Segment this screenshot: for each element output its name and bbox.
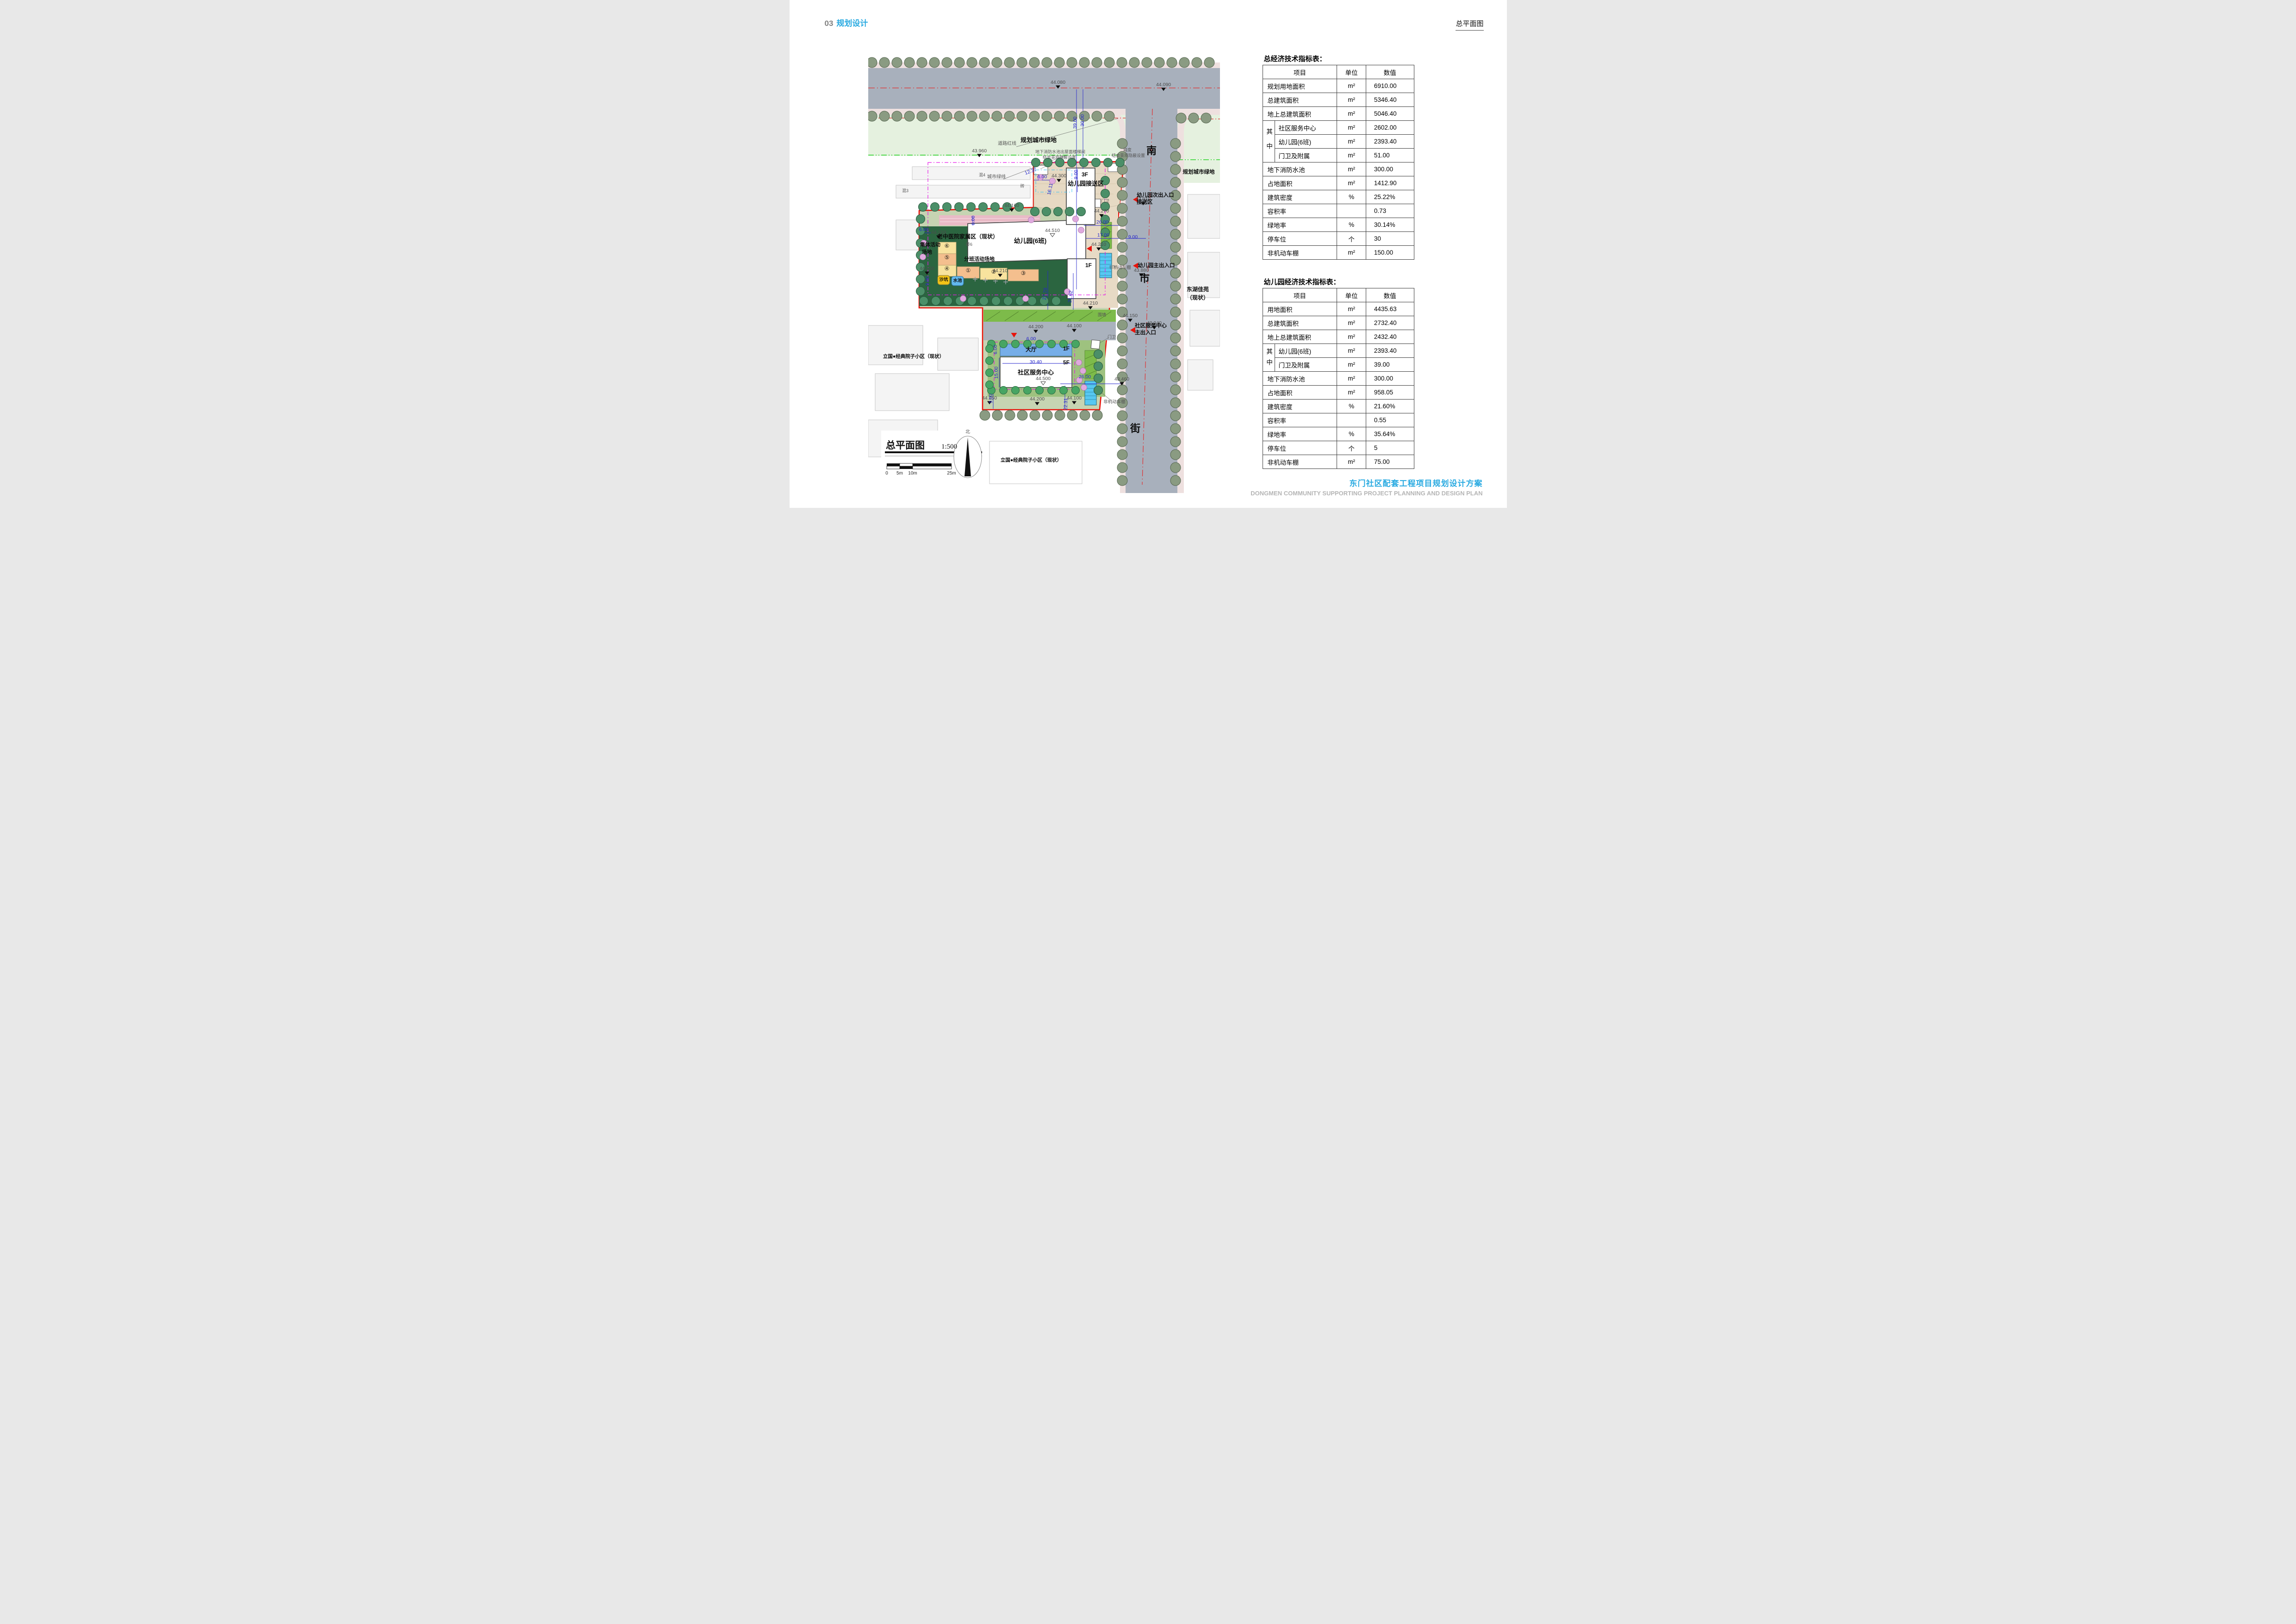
dimension-label: 6.00: [919, 227, 928, 232]
tree: [1129, 57, 1139, 68]
tree: [1117, 462, 1127, 473]
table-cell: 300.00: [1366, 372, 1414, 386]
table-cell: 单位: [1337, 65, 1366, 79]
level-label: 44.510: [1045, 228, 1059, 233]
play-area-number: ④: [944, 265, 949, 272]
tree: [1170, 268, 1181, 278]
dimension-label: 26.00: [1096, 219, 1108, 225]
tree: [954, 111, 964, 121]
road-north: [868, 68, 1220, 109]
tree: [985, 357, 993, 365]
table-cell: 39.00: [1366, 358, 1414, 372]
tree: [1188, 113, 1199, 123]
page-footer: 东门社区配套工程项目规划设计方案 DONGMEN COMMUNITY SUPPO…: [1251, 477, 1482, 497]
flowering-tree: [1022, 296, 1028, 302]
table-cell: 个: [1337, 232, 1366, 246]
plan-title: 总平面图: [886, 440, 925, 451]
tree: [1091, 158, 1100, 167]
tree: [1117, 138, 1127, 149]
annotation-label: 结合景观隐蔽设置: [1042, 155, 1076, 160]
flowering-tree: [1081, 385, 1087, 391]
tree: [966, 203, 975, 212]
tree: [892, 57, 902, 68]
area-label: 3F: [1081, 171, 1088, 178]
tree: [1170, 320, 1181, 330]
tree: [1170, 242, 1181, 252]
level-label: 44.200: [1029, 396, 1044, 402]
tree: [1053, 207, 1062, 216]
level-label: 44.100: [1066, 395, 1081, 401]
flowering-tree: [1028, 217, 1034, 223]
tree: [1031, 158, 1040, 167]
dimension-label: 6.00: [1026, 336, 1036, 342]
tree: [1117, 346, 1127, 356]
tree: [1170, 216, 1181, 226]
play-area-number: ⑤: [944, 254, 949, 261]
tree: [1092, 410, 1102, 420]
tree: [1117, 333, 1127, 343]
access-strip: [983, 322, 1116, 340]
table-cell: 0.73: [1366, 204, 1414, 218]
tree: [1170, 294, 1181, 304]
chapter-number: 03: [825, 19, 834, 28]
table-cell: 非机动车棚: [1263, 246, 1337, 260]
table-cell: %: [1337, 190, 1366, 204]
tree: [1011, 340, 1019, 348]
table-cell-group: 其中: [1263, 344, 1275, 372]
tree: [1117, 294, 1127, 304]
annotation-label: 门卫: [1101, 198, 1109, 203]
area-label: 幼儿园(6班): [1014, 237, 1046, 244]
scale-label: 0: [885, 471, 888, 476]
annotation-label: 箱变: [1123, 147, 1131, 152]
tree: [1023, 387, 1031, 394]
table-cell: 地下消防水池: [1263, 372, 1337, 386]
indicator-table: 项目单位数值用地面积m²4435.63总建筑面积m²2732.40地上总建筑面积…: [1263, 288, 1414, 469]
tree: [904, 57, 915, 68]
flowering-tree: [1076, 360, 1082, 366]
tree: [1030, 410, 1040, 420]
overall-indicator-table: 项目单位数值规划用地面积m²6910.00总建筑面积m²5346.40地上总建筑…: [1263, 65, 1414, 260]
annotation-label: 城市绿线: [987, 174, 1006, 180]
table-cell: 绿地率: [1263, 218, 1337, 232]
tree: [1071, 340, 1079, 348]
table-cell: 用地面积: [1263, 302, 1337, 316]
flowering-tree: [1072, 216, 1078, 222]
flowering-tree: [1080, 368, 1086, 374]
area-label: 立国●经典院子小区（现状）: [883, 353, 944, 359]
tree: [1103, 158, 1112, 167]
table-cell: 21.60%: [1366, 400, 1414, 413]
table-cell: 门卫及附属: [1275, 358, 1337, 372]
table-cell: 2393.40: [1366, 344, 1414, 358]
play-area-number: ⑥: [944, 243, 949, 249]
dimension-label: 6.00: [1037, 174, 1047, 180]
table-cell: 2732.40: [1366, 316, 1414, 330]
tree: [919, 297, 928, 306]
tree: [879, 57, 890, 68]
tree: [999, 340, 1007, 348]
road-south-market-street: [1126, 109, 1177, 493]
table-cell: 958.05: [1366, 386, 1414, 400]
tree: [1117, 57, 1127, 68]
tree: [917, 57, 927, 68]
tree: [1192, 57, 1202, 68]
tree: [1117, 216, 1127, 226]
table-cell: 单位: [1337, 288, 1366, 302]
tree: [1080, 410, 1090, 420]
tree: [942, 111, 952, 121]
tree: [904, 111, 915, 121]
tree: [868, 57, 877, 68]
table-cell: 停车位: [1263, 232, 1337, 246]
tree: [929, 111, 940, 121]
tree: [1035, 340, 1043, 348]
table-cell: 5346.40: [1366, 93, 1414, 107]
level-label: 44.270: [1094, 208, 1108, 214]
tree: [1017, 111, 1027, 121]
tree: [1117, 320, 1127, 330]
level-label: 44.090: [1156, 82, 1170, 87]
tree: [916, 275, 925, 284]
project-title-en: DONGMEN COMMUNITY SUPPORTING PROJECT PLA…: [1251, 490, 1482, 497]
table-cell: m²: [1337, 344, 1366, 358]
sheet-title: 总平面图: [1456, 19, 1483, 31]
area-label: 沙坑: [939, 277, 948, 282]
area-label: 5F: [1063, 359, 1069, 366]
level-label: 43.460: [1114, 376, 1129, 382]
tree: [1170, 424, 1181, 434]
table-cell: 2432.40: [1366, 330, 1414, 344]
tree: [1170, 372, 1181, 382]
tree: [1170, 138, 1181, 149]
tree: [1042, 57, 1052, 68]
dimension-label: 39.00: [1072, 117, 1078, 129]
table-cell: 绿地率: [1263, 427, 1337, 441]
tree: [992, 410, 1002, 420]
table-cell: m²: [1337, 455, 1366, 469]
tree: [1052, 297, 1060, 306]
annotation-label: 混4: [978, 173, 985, 177]
area-label: 1F: [1063, 345, 1069, 352]
tree: [879, 111, 890, 121]
table-cell: 51.00: [1366, 149, 1414, 162]
tree: [1047, 340, 1055, 348]
tree: [1115, 158, 1124, 167]
table-cell: 项目: [1263, 65, 1337, 79]
table-cell-group: 其中: [1263, 121, 1275, 162]
table-cell: m²: [1337, 176, 1366, 190]
tree: [1117, 190, 1127, 200]
tree: [1094, 386, 1102, 395]
tree: [1170, 229, 1181, 239]
tree: [1142, 57, 1152, 68]
table-cell: 6910.00: [1366, 79, 1414, 93]
tree: [954, 57, 964, 68]
tree: [1170, 346, 1181, 356]
tree: [979, 57, 989, 68]
play-area-number: ①: [965, 267, 971, 274]
table-cell: 建筑密度: [1263, 400, 1337, 413]
table-cell: m²: [1337, 93, 1366, 107]
annotation-label: 非机动车棚: [1109, 265, 1131, 270]
area-label: 1F: [1085, 262, 1091, 269]
tree: [1101, 189, 1109, 198]
table-cell: m²: [1337, 149, 1366, 162]
tree: [1027, 297, 1036, 306]
dimension-label: 17.00: [1097, 232, 1109, 238]
annotation-label: 砖: [1020, 183, 1024, 188]
table-cell: 5046.40: [1366, 107, 1414, 121]
annotation-label: 道路红线: [998, 140, 1016, 146]
dimension-label: 6.00: [971, 216, 976, 225]
table-cell: 建筑密度: [1263, 190, 1337, 204]
tree: [967, 57, 977, 68]
tree: [1092, 111, 1102, 121]
scale-label: 25m: [947, 471, 956, 476]
level-label: 44.200: [1028, 324, 1043, 330]
table-cell: 300.00: [1366, 162, 1414, 176]
dimension-label: 30.00: [1080, 114, 1085, 126]
table-cell: %: [1337, 427, 1366, 441]
tree: [1054, 57, 1064, 68]
annotation-label: 门卫: [1107, 334, 1115, 339]
table-cell: %: [1337, 218, 1366, 232]
area-label: 南: [1146, 145, 1156, 156]
table-cell: m²: [1337, 135, 1366, 149]
tree: [992, 57, 1002, 68]
tree: [1055, 410, 1065, 420]
table-cell: 35.64%: [1366, 427, 1414, 441]
tree: [1005, 410, 1015, 420]
tree: [990, 203, 999, 212]
tree: [1094, 350, 1102, 359]
table-title-overall: 总经济技术指标表：: [1264, 54, 1326, 63]
area-label: 老中医院家属区（现状）: [937, 233, 998, 240]
level-label: 44.210: [1083, 300, 1097, 306]
table-cell: 停车位: [1263, 441, 1337, 455]
page-header: 03规划设计: [825, 17, 868, 28]
table-cell: 地下消防水池: [1263, 162, 1337, 176]
table-cell: 5: [1366, 441, 1414, 455]
table-cell: m²: [1337, 316, 1366, 330]
area-label: 水池: [953, 278, 962, 283]
annotation-label: 砖6: [965, 242, 972, 247]
table-cell: 地上总建筑面积: [1263, 107, 1337, 121]
tree: [1030, 207, 1039, 216]
table-cell: m²: [1337, 372, 1366, 386]
tree: [1059, 387, 1067, 394]
tree: [1104, 57, 1114, 68]
tree: [1117, 385, 1127, 395]
table-cell: m²: [1337, 162, 1366, 176]
entrance-label: 主出入口: [1135, 329, 1156, 336]
tree: [1035, 387, 1043, 394]
area-label: 集体活动: [920, 241, 940, 248]
tree: [985, 381, 993, 389]
tree: [1170, 411, 1181, 421]
annotation-label: 围墙: [1097, 312, 1106, 317]
tree: [1179, 57, 1189, 68]
tree: [1170, 437, 1181, 447]
tree: [1076, 207, 1085, 216]
tree: [985, 369, 993, 377]
tree: [1167, 57, 1177, 68]
document-page: 03规划设计 总平面图: [790, 0, 1507, 508]
dimension-label: 15.00: [994, 367, 999, 379]
tree: [942, 57, 952, 68]
tree: [1170, 398, 1181, 408]
entrance-label: 幼儿园主出入口: [1138, 262, 1175, 269]
tree: [1170, 333, 1181, 343]
area-label: 东湖佳苑: [1186, 286, 1208, 293]
dimension-label: 6.00: [993, 345, 998, 355]
table-cell: m²: [1337, 330, 1366, 344]
table-cell: m²: [1337, 107, 1366, 121]
area-label: 规划城市绿地: [1182, 169, 1214, 175]
scale-bar: [887, 463, 952, 469]
table-cell: 4435.63: [1366, 302, 1414, 316]
table-cell: m²: [1337, 246, 1366, 260]
annotation-label: 结合景观隐蔽设置: [1111, 153, 1145, 158]
table-cell: 0.55: [1366, 413, 1414, 427]
tree: [1042, 207, 1051, 216]
tree: [1004, 57, 1014, 68]
tree: [1094, 362, 1102, 371]
area-label: 分班活动场地: [964, 256, 995, 262]
tree: [942, 203, 951, 212]
tree: [1029, 57, 1039, 68]
entrance-label: 社区服务中心: [1134, 322, 1167, 329]
flowering-tree: [1078, 227, 1084, 233]
annotation-label: 非机动车棚: [1103, 399, 1126, 405]
table-cell: 幼儿园(6班): [1275, 135, 1337, 149]
tree: [1042, 111, 1052, 121]
area-label: 幼儿园接送区: [1067, 180, 1103, 187]
tree: [1117, 411, 1127, 421]
dimension-label: 22.31: [1063, 398, 1069, 410]
tree: [1170, 475, 1181, 486]
table-cell: 150.00: [1366, 246, 1414, 260]
tree: [967, 297, 976, 306]
table-cell: 数值: [1366, 65, 1414, 79]
annotation-label: 北: [965, 429, 970, 435]
table-cell: m²: [1337, 358, 1366, 372]
table-cell: 30: [1366, 232, 1414, 246]
tree: [1117, 475, 1127, 486]
tree: [1204, 57, 1214, 68]
tree: [930, 203, 939, 212]
tree: [916, 215, 925, 224]
tree: [1117, 229, 1127, 239]
tree: [1029, 111, 1039, 121]
scale-label: 10m: [908, 471, 917, 476]
table-cell: m²: [1337, 386, 1366, 400]
table-cell: 总建筑面积: [1263, 93, 1337, 107]
table-cell: 总建筑面积: [1263, 316, 1337, 330]
tree: [979, 297, 988, 306]
tree: [980, 410, 990, 420]
tree: [979, 111, 989, 121]
table-cell: 占地面积: [1263, 176, 1337, 190]
tree: [916, 287, 925, 296]
tree: [1117, 242, 1127, 252]
area-label: 大厅: [1025, 346, 1036, 353]
table-cell: 门卫及附属: [1275, 149, 1337, 162]
tree: [1079, 158, 1088, 167]
plan-scale: 1:500: [941, 443, 957, 450]
tree: [954, 203, 963, 212]
dimension-label: 30.40: [1029, 359, 1041, 365]
level-label: 44.150: [1122, 313, 1137, 319]
table-cell: m²: [1337, 79, 1366, 93]
level-label: 44.300: [1051, 173, 1066, 179]
table-cell: 占地面积: [1263, 386, 1337, 400]
level-label: 43.960: [971, 148, 986, 154]
tree: [929, 57, 940, 68]
tree: [918, 203, 927, 212]
table-cell: m²: [1337, 302, 1366, 316]
tree: [1170, 203, 1181, 213]
tree: [1170, 359, 1181, 369]
table-cell: 项目: [1263, 288, 1337, 302]
area-label: 街: [1129, 423, 1140, 434]
table-cell: 社区服务中心: [1275, 121, 1337, 135]
entrance-label: 接送区: [1137, 199, 1153, 205]
tree: [1003, 297, 1012, 306]
dimension-label: 9.00: [988, 394, 994, 404]
tree: [892, 111, 902, 121]
area-label: 立国●经典院子小区（现状）: [1000, 457, 1061, 463]
tree: [985, 345, 993, 353]
tree: [1154, 57, 1164, 68]
entrance-label: 幼儿园次出入口: [1137, 192, 1174, 198]
table-cell: 30.14%: [1366, 218, 1414, 232]
dimension-label: 9.00: [1128, 234, 1138, 240]
scale-label: 5m: [896, 471, 903, 476]
level-label: 44.100: [1066, 323, 1081, 329]
flowering-tree: [960, 296, 966, 302]
tree: [1042, 410, 1052, 420]
tree: [1104, 111, 1114, 121]
table-cell: 2393.40: [1366, 135, 1414, 149]
table-cell: 2602.00: [1366, 121, 1414, 135]
tree: [917, 111, 927, 121]
table-cell: [1337, 413, 1366, 427]
tree: [1004, 111, 1014, 121]
tree: [1067, 410, 1077, 420]
tree: [1117, 203, 1127, 213]
tree: [1117, 255, 1127, 265]
table-title-kindergarten: 幼儿园经济技术指标表：: [1264, 277, 1340, 287]
tree: [1170, 281, 1181, 291]
site-plan: 44.08044.09043.96044.16044.30044.27044.2…: [868, 39, 1220, 493]
tree: [991, 297, 1000, 306]
tree: [1117, 359, 1127, 369]
tree: [1176, 113, 1186, 123]
table-cell: 75.00: [1366, 455, 1414, 469]
tree: [868, 111, 877, 121]
tree: [992, 111, 1002, 121]
kindergarten-indicator-table: 项目单位数值用地面积m²4435.63总建筑面积m²2732.40地上总建筑面积…: [1263, 288, 1414, 469]
level-label: 44.160: [1004, 203, 1019, 208]
area-label: 规划城市绿地: [1020, 137, 1056, 144]
tree: [943, 297, 952, 306]
tree: [999, 387, 1007, 394]
table-cell: [1337, 204, 1366, 218]
tree: [967, 111, 977, 121]
tree: [1201, 113, 1211, 123]
